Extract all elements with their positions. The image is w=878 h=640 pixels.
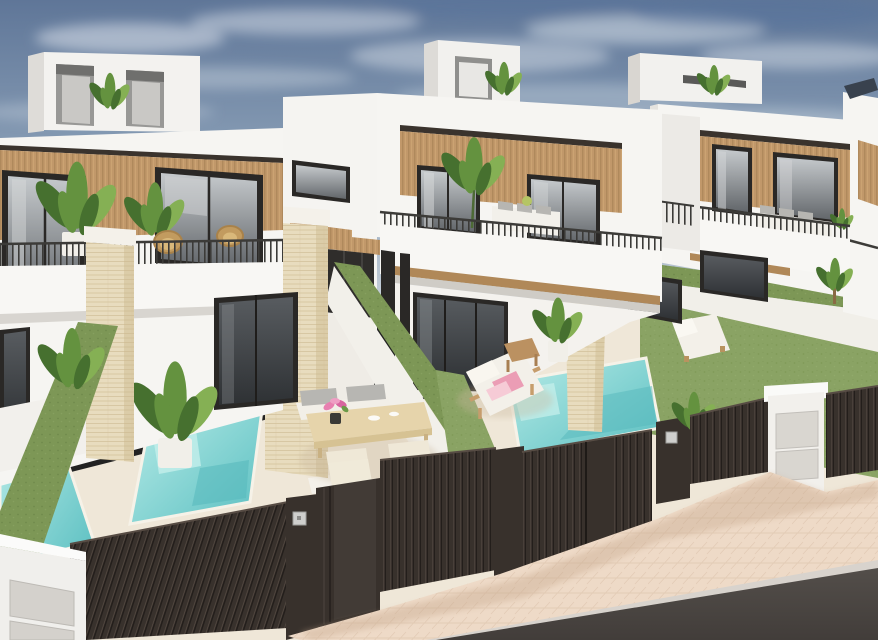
plate [368,415,380,420]
intercom-plate [666,432,677,443]
house-2-roof-box [424,40,525,103]
tower-window [292,160,350,203]
roof-door [56,64,94,126]
gate-pillar [286,494,318,640]
window [712,144,752,216]
architectural-render [0,0,878,640]
plate [389,412,399,416]
house-1-roof-box [28,52,200,133]
gate-pillar [656,416,690,504]
privacy-fence [826,386,878,478]
ground-window [214,292,298,410]
bench-cushion [346,384,386,402]
render-canvas [0,0,878,640]
wood-cladding [858,140,878,206]
gate-pillar [494,446,524,582]
roof-door [126,70,164,128]
utility-cabinet [0,534,86,640]
house-3-roof-box [628,53,762,105]
